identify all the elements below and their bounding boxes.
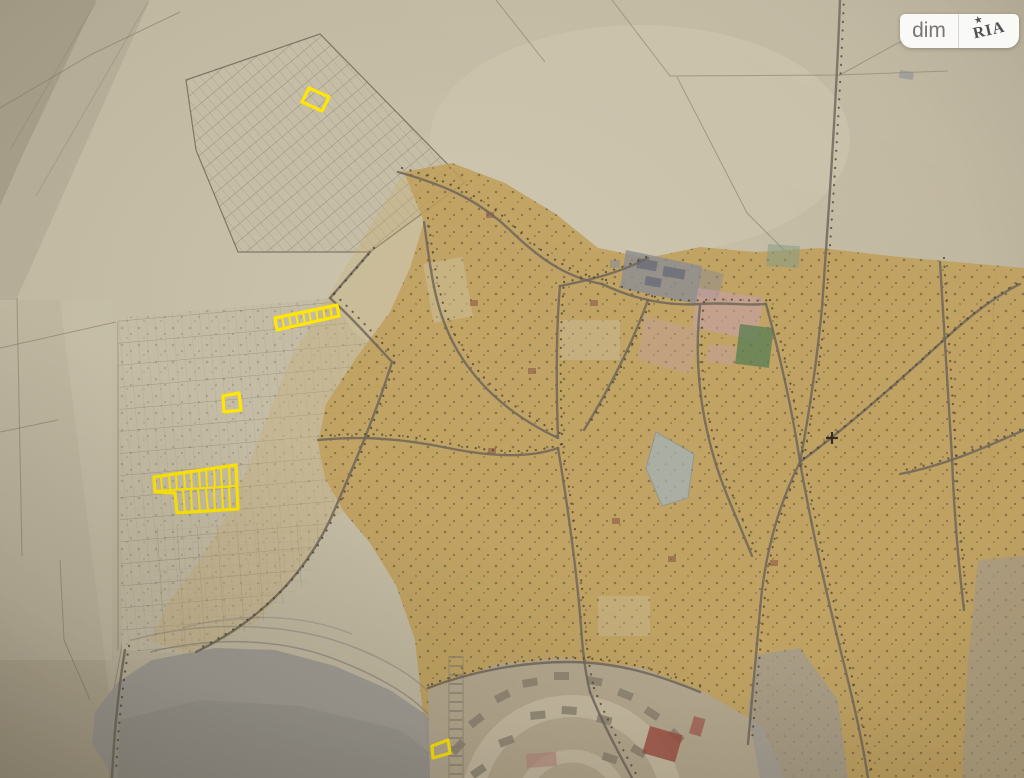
highlight-plot-large-divider — [221, 467, 222, 487]
highlight-plot-large-divider — [229, 466, 230, 487]
highlight-plot-large-divider — [191, 472, 192, 489]
highlight-plot-large-divider — [176, 474, 177, 490]
highlight-plot-large-divider — [169, 475, 170, 490]
highlight-plot-large-divider — [191, 490, 192, 512]
highlight-plot-large-divider — [161, 476, 162, 491]
highlight-plot-large-divider — [229, 487, 230, 510]
highlight-plot-large-divider — [206, 469, 207, 488]
dim-logo: dim — [900, 14, 959, 48]
highlight-plot-large-divider — [199, 470, 200, 488]
map-canvas — [0, 0, 1024, 778]
ria-logo: ★ RIA — [959, 14, 1019, 48]
pink-smudge — [526, 752, 557, 768]
dim-ria-watermark: dim ★ RIA — [900, 14, 1019, 48]
dim-logo-text: dim — [912, 19, 946, 43]
highlight-plot-large-divider — [214, 468, 215, 487]
map-photo[interactable]: dim ★ RIA — [0, 0, 1024, 778]
highlight-plot-large-divider — [184, 473, 185, 489]
highlight-plot-large-divider — [222, 487, 223, 510]
highlight-plot-large-divider — [214, 488, 215, 511]
